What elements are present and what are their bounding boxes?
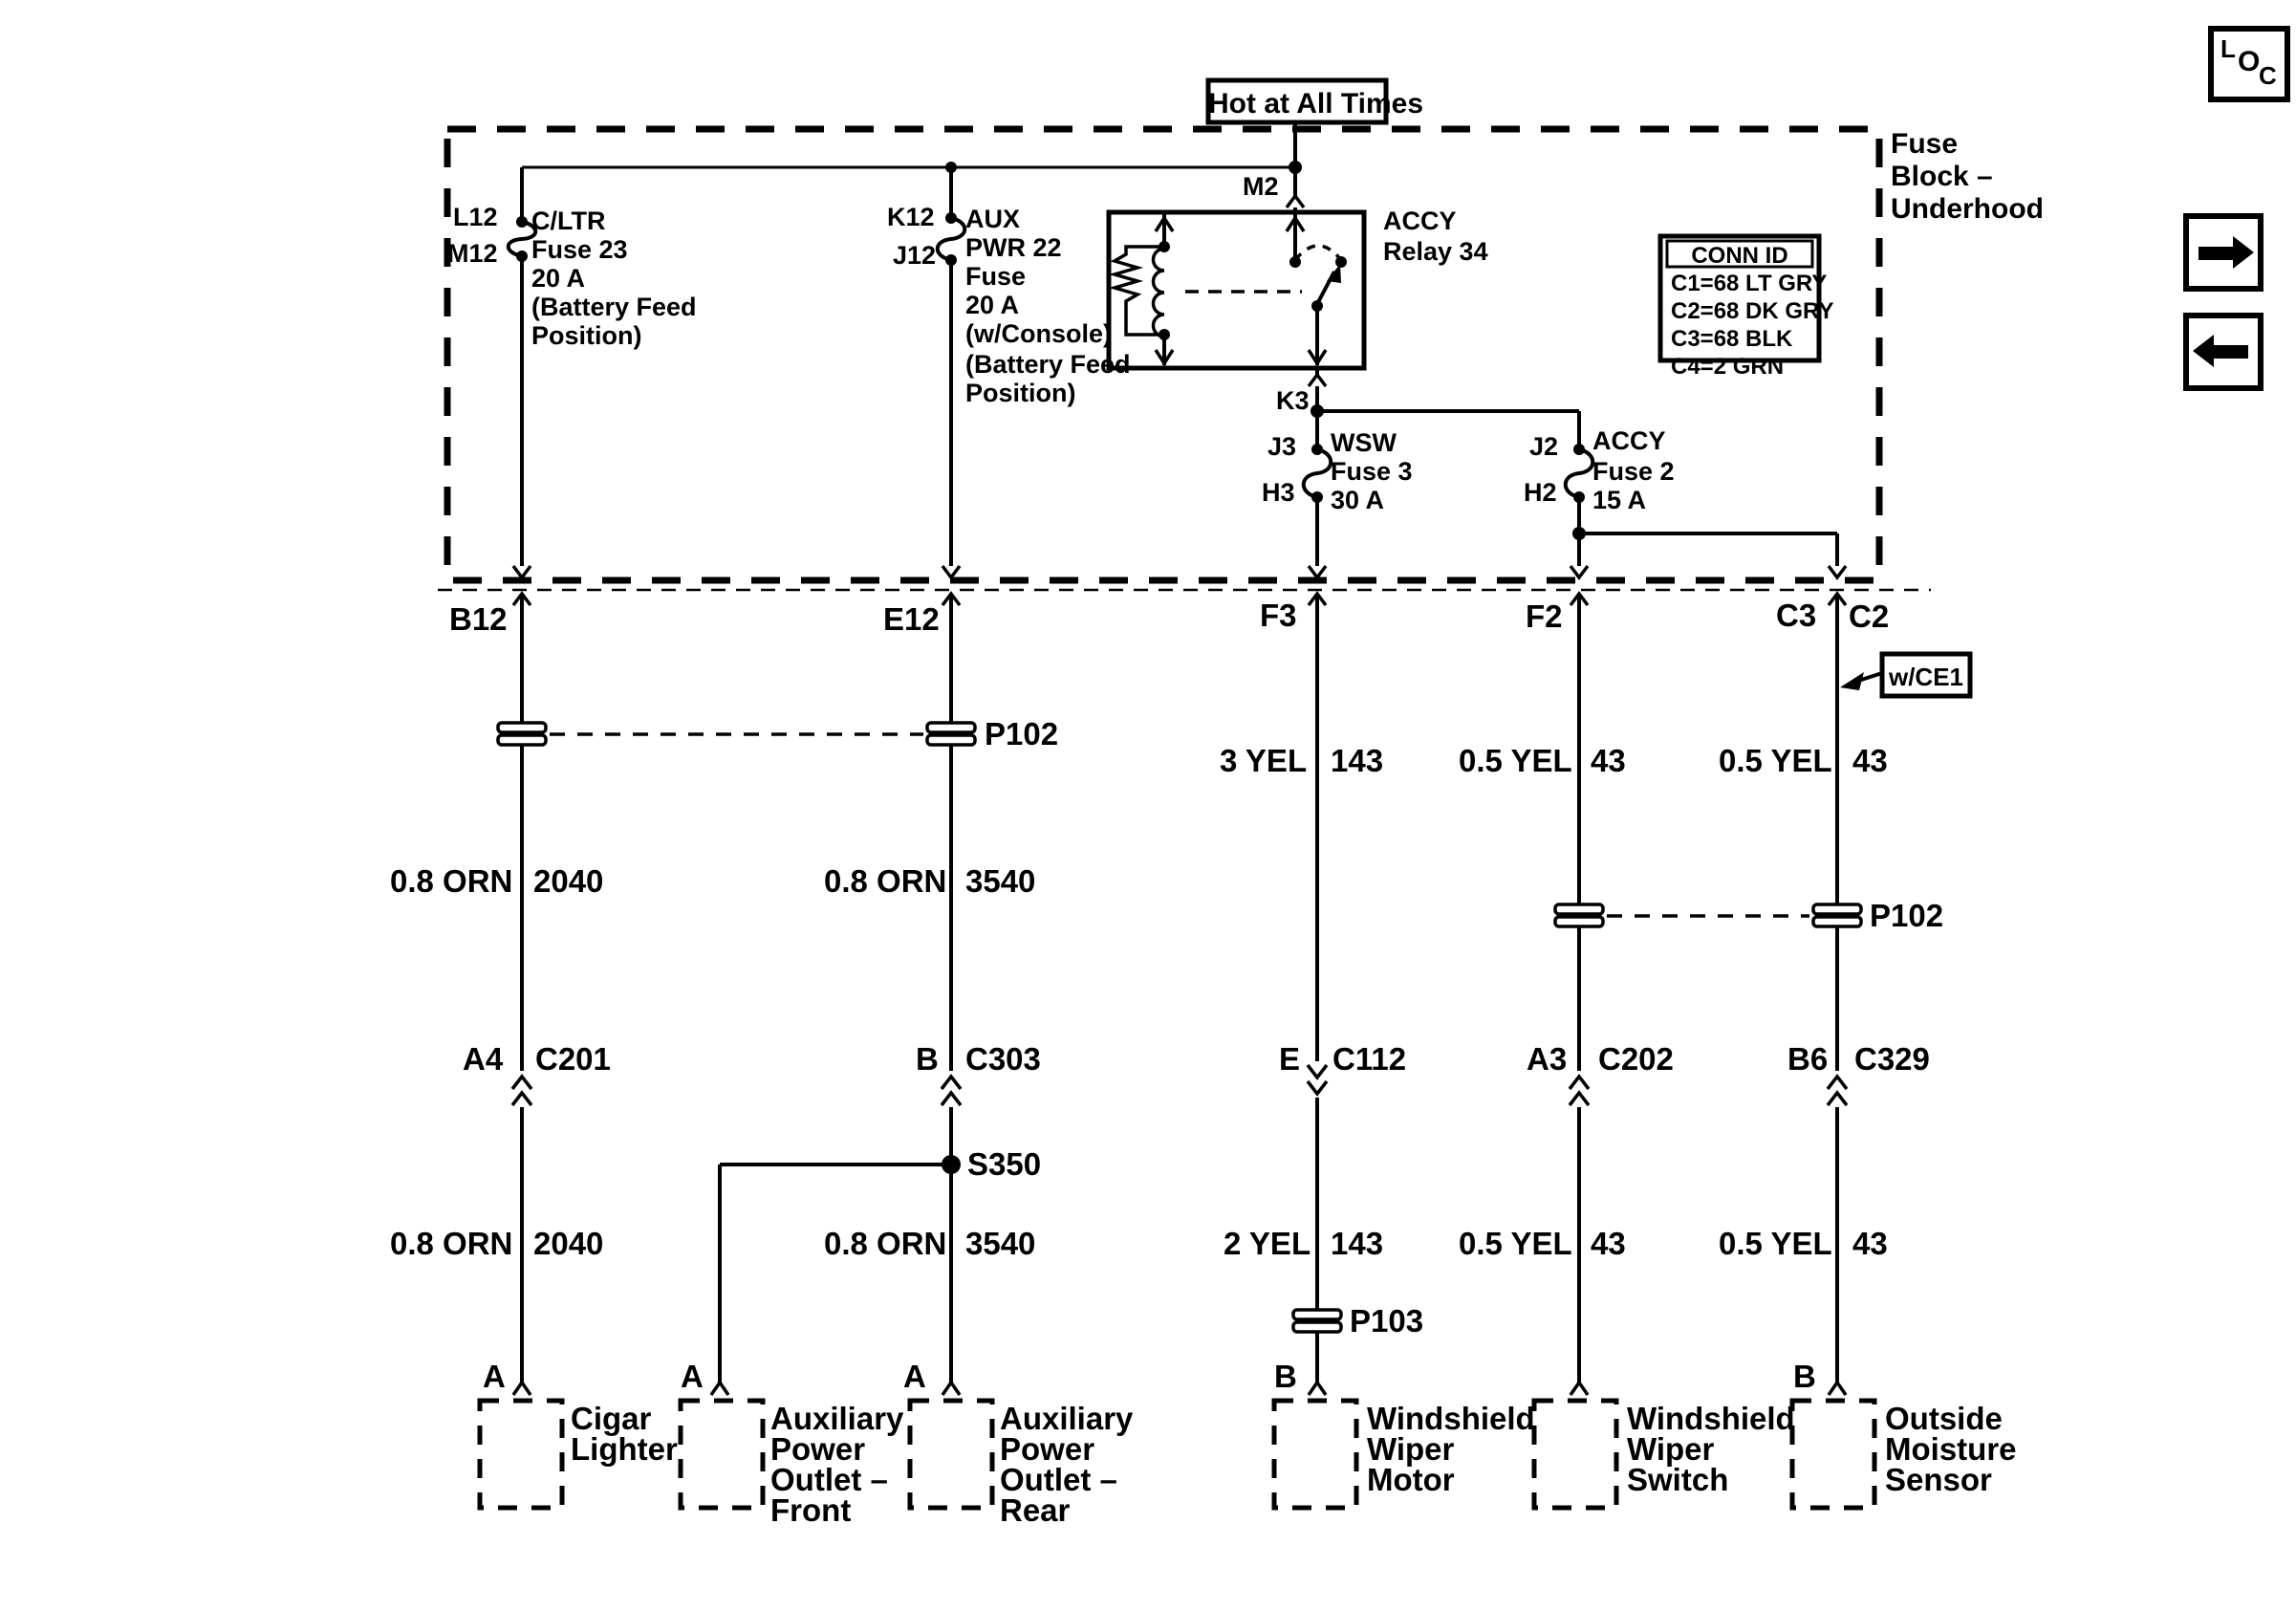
aux-fuse-line5: (w/Console) [965,319,1112,348]
wsw-fuse-line2: Fuse 3 [1331,457,1413,486]
cltr-fuse-line3: 20 A [531,264,585,293]
accy-relay [1109,212,1364,368]
wire-gauge: 3 YEL [1220,744,1307,778]
fuse-symbol [1304,449,1332,497]
connector-c303: C303 [965,1042,1041,1077]
wire-circuit: 143 [1331,1227,1383,1261]
wire-circuit: 43 [1591,1227,1626,1261]
wsw-fuse-line3: 30 A [1331,486,1384,514]
moisture-sensor-wire [1579,533,1847,1395]
fuse-block-name-line3: Underhood [1891,193,2044,226]
aux-fuse-line3: Fuse [965,262,1026,291]
accy-fuse-line3: 15 A [1592,486,1646,514]
relay-label-line2: Relay 34 [1383,237,1488,266]
aux-outlet-rear-box [910,1401,992,1508]
wire-gauge: 0.8 ORN [390,1227,512,1261]
inline-connector-icon [1828,1077,1847,1105]
conn-id-row2: C2=68 DK GRY [1671,297,1834,325]
wiring-svg [0,0,2296,1611]
connector-c202: C202 [1598,1042,1674,1077]
wire-gauge: 0.8 ORN [824,1227,946,1261]
pin-e: E [1279,1042,1300,1077]
conn-id-title: CONN ID [1667,242,1812,270]
cltr-fuse-line5: Position) [531,321,642,350]
wire-gauge: 0.5 YEL [1459,744,1572,778]
wsw-fuse-line1: WSW [1331,428,1397,457]
fuse-block-name-line2: Block – [1891,161,1993,193]
terminal-j2: J2 [1529,432,1558,461]
wiper-switch-box [1534,1401,1616,1508]
terminal-h3: H3 [1262,478,1295,507]
pin-a4: A4 [463,1042,503,1077]
pin-letter: B [1793,1360,1816,1394]
loc-letter-o: O [2238,46,2260,78]
exit-c2: C2 [1849,599,1889,634]
wire-circuit: 43 [1852,1227,1888,1261]
conn-id-row1: C1=68 LT GRY [1671,270,1827,297]
aux-fuse-line6: (Battery Feed [965,350,1131,379]
p103-connector [1293,1310,1341,1332]
inline-connector-icon [1570,1077,1589,1105]
terminal-k3: K3 [1276,386,1310,415]
inline-connector-icon [1308,1065,1327,1094]
component-cigar-lighter-line2: Lighter [571,1432,678,1467]
relay-label-line1: ACCY [1383,207,1457,235]
moisture-sensor-box [1792,1401,1874,1508]
accy-fuse-line1: ACCY [1592,426,1666,455]
inline-connector-icon [942,1077,961,1105]
fuse-block-name-line1: Fuse [1891,128,1958,161]
splice-s350-label: S350 [967,1147,1041,1182]
pin-letter: B [1274,1360,1297,1394]
component-aux-rear-line4: Rear [1000,1493,1070,1528]
terminal-m2: M2 [1243,172,1279,201]
conn-id-row4: C4=2 GRN [1671,353,1784,381]
exit-b12: B12 [449,602,508,637]
component-moisture-sensor-line3: Sensor [1885,1463,1992,1497]
exit-f3: F3 [1260,599,1297,633]
terminal-l12: L12 [453,203,498,231]
fuse-symbol [1566,449,1593,497]
terminal-j12: J12 [893,241,936,270]
wire-gauge: 2 YEL [1224,1227,1310,1261]
wire-gauge: 0.5 YEL [1719,744,1832,778]
wire-gauge: 0.5 YEL [1459,1227,1572,1261]
pin-b6: B6 [1787,1042,1828,1077]
wiper-motor-box [1274,1401,1356,1508]
wire-circuit: 43 [1852,744,1888,778]
accy-fuse-line2: Fuse 2 [1592,457,1675,486]
wire-circuit: 3540 [965,1227,1035,1261]
cltr-fuse-wire [509,167,536,1395]
cltr-fuse-line1: C/LTR [531,207,605,235]
wire-gauge: 0.5 YEL [1719,1227,1832,1261]
connector-c329: C329 [1854,1042,1930,1077]
terminal-m12: M12 [447,239,498,268]
p103-label: P103 [1350,1304,1423,1339]
component-wiper-motor-line3: Motor [1367,1463,1455,1497]
cltr-fuse-line2: Fuse 23 [531,235,628,264]
wire-gauge: 0.8 ORN [390,864,512,899]
wire-circuit: 43 [1591,744,1626,778]
hot-at-all-times-label: Hot at All Times [1208,88,1386,120]
p102-right-connector [1555,904,1861,926]
p102-left-connector [498,723,975,745]
exit-c3: C3 [1776,599,1816,633]
terminal-h2: H2 [1524,478,1557,507]
pin-letter: A [681,1360,704,1394]
pin-letter: A [903,1360,926,1394]
exit-f2: F2 [1526,599,1563,634]
terminal-k12: K12 [887,203,935,231]
loc-letter-c: C [2259,61,2277,91]
terminal-j3: J3 [1267,432,1296,461]
aux-pwr-fuse-wire [938,167,965,1395]
pin-a3: A3 [1527,1042,1567,1077]
loc-letter-l: L [2220,34,2236,64]
wire-circuit: 2040 [533,864,603,899]
connector-c112: C112 [1332,1042,1406,1077]
wire-gauge: 0.8 ORN [824,864,946,899]
connector-c201: C201 [535,1042,611,1077]
exit-e12: E12 [883,602,940,637]
aux-fuse-line2: PWR 22 [965,233,1062,262]
p102-left-label: P102 [985,717,1058,751]
component-wiper-switch-line3: Switch [1627,1463,1728,1497]
component-aux-front-line4: Front [770,1493,851,1528]
wce1-label: w/CE1 [1882,664,1970,690]
cltr-fuse-line4: (Battery Feed [531,293,697,321]
inline-connector-icon [512,1077,531,1105]
pin-b: B [916,1042,939,1077]
fuse-symbol [938,218,965,260]
wiring-diagram-page: Hot at All Times Fuse Block – Underhood … [0,0,2296,1611]
p102-right-label: P102 [1870,899,1943,933]
conn-id-row3: C3=68 BLK [1671,325,1792,353]
aux-outlet-front-box [681,1401,763,1508]
wire-circuit: 143 [1331,744,1383,778]
pin-letter: A [483,1360,506,1394]
wire-circuit: 2040 [533,1227,603,1261]
aux-fuse-line7: Position) [965,379,1076,407]
cigar-lighter-box [480,1401,562,1508]
aux-fuse-line4: 20 A [965,291,1019,319]
aux-fuse-line1: AUX [965,205,1020,233]
wire-circuit: 3540 [965,864,1035,899]
